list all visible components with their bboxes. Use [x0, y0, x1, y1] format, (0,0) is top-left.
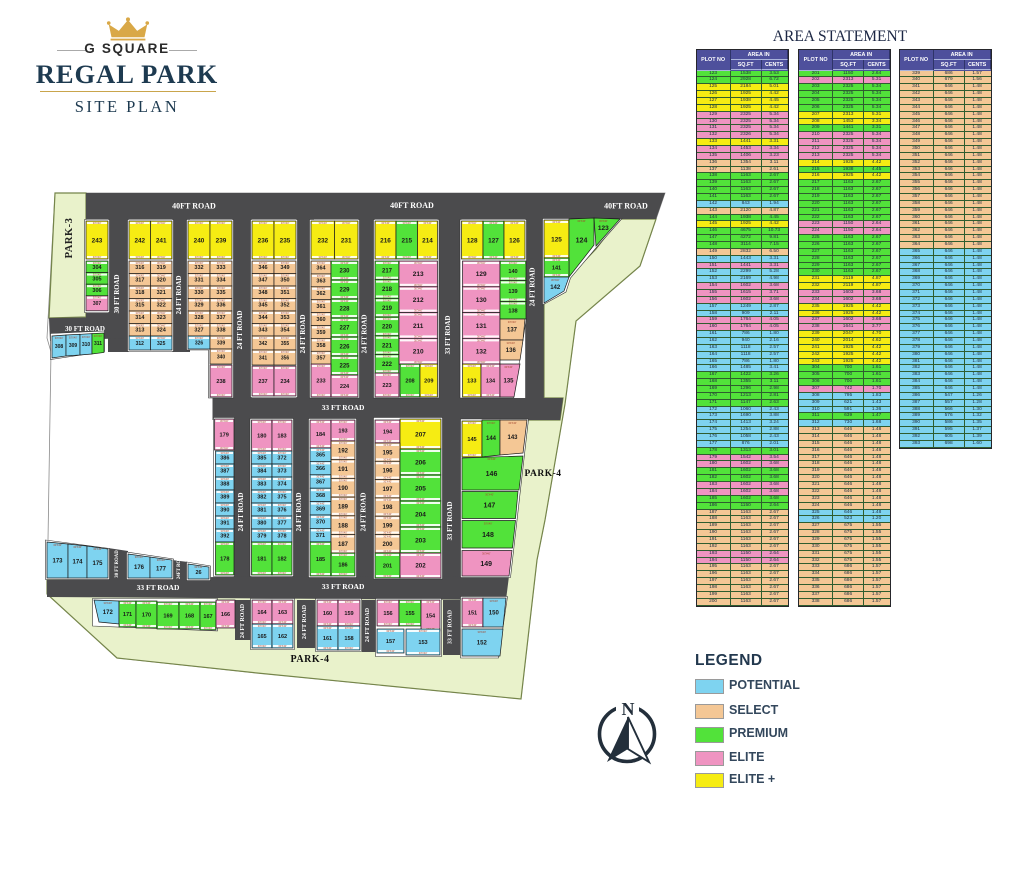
- svg-text:30'X40': 30'X40': [340, 318, 349, 322]
- svg-text:30'X40': 30'X40': [278, 516, 287, 520]
- svg-text:30'X40': 30'X40': [468, 255, 477, 259]
- svg-text:30'X40': 30'X40': [383, 369, 392, 373]
- svg-text:30'X40': 30'X40': [468, 623, 477, 627]
- svg-text:30'X40': 30'X40': [487, 421, 496, 425]
- svg-text:30'X40': 30'X40': [258, 624, 267, 628]
- svg-text:24 FT ROAD: 24 FT ROAD: [296, 493, 303, 532]
- svg-text:30'X40': 30'X40': [383, 457, 392, 461]
- svg-text:234: 234: [280, 379, 290, 385]
- svg-text:30'X40': 30'X40': [278, 464, 287, 468]
- svg-text:30'X40': 30'X40': [383, 313, 392, 317]
- svg-text:233: 233: [316, 379, 325, 385]
- svg-text:30'X40': 30'X40': [340, 375, 349, 379]
- svg-text:30'X40': 30'X40': [383, 549, 392, 553]
- svg-text:30'X40': 30'X40': [94, 334, 103, 338]
- svg-text:140: 140: [508, 269, 517, 275]
- svg-text:30'X40': 30'X40': [259, 366, 268, 370]
- svg-text:150: 150: [489, 611, 500, 617]
- svg-text:30'X40': 30'X40': [383, 531, 392, 535]
- svg-text:30'X40': 30'X40': [204, 626, 213, 630]
- svg-text:PARK-3: PARK-3: [64, 218, 75, 259]
- svg-text:30'X40': 30'X40': [317, 393, 326, 397]
- svg-text:30'X40': 30'X40': [552, 273, 561, 277]
- svg-text:228: 228: [339, 307, 350, 313]
- svg-text:30'X40': 30'X40': [486, 364, 495, 368]
- svg-text:356: 356: [281, 355, 290, 361]
- svg-text:30'X40': 30'X40': [383, 553, 392, 557]
- svg-text:30'X40': 30'X40': [552, 258, 561, 262]
- svg-text:241: 241: [156, 237, 167, 244]
- svg-text:30'X40': 30'X40': [477, 313, 486, 317]
- svg-text:336: 336: [216, 303, 225, 309]
- svg-text:304: 304: [92, 265, 102, 271]
- svg-text:30'X40': 30'X40': [384, 600, 393, 604]
- svg-text:381: 381: [257, 508, 266, 514]
- svg-text:30'X40': 30'X40': [383, 443, 392, 447]
- svg-text:30'X40': 30'X40': [414, 283, 423, 287]
- svg-text:30'X40': 30'X40': [185, 625, 194, 629]
- svg-text:385: 385: [257, 456, 266, 462]
- svg-text:315: 315: [135, 303, 144, 309]
- svg-text:33 FT ROAD: 33 FT ROAD: [322, 582, 365, 591]
- svg-text:30'X40': 30'X40': [345, 646, 354, 650]
- svg-text:30 FT ROAD: 30 FT ROAD: [65, 325, 105, 333]
- svg-text:155: 155: [405, 611, 414, 617]
- svg-text:128: 128: [467, 237, 478, 244]
- svg-text:PARK-4: PARK-4: [524, 469, 561, 479]
- svg-text:242: 242: [134, 237, 145, 244]
- svg-text:30'X40': 30'X40': [414, 338, 423, 342]
- svg-text:380: 380: [257, 521, 266, 527]
- svg-text:332: 332: [194, 265, 203, 271]
- svg-text:30'X40': 30'X40': [383, 498, 392, 502]
- svg-text:30'X40': 30'X40': [468, 421, 477, 425]
- svg-text:344: 344: [258, 315, 268, 321]
- svg-text:30'X40': 30'X40': [316, 542, 325, 546]
- svg-text:30'X40': 30'X40': [340, 337, 349, 341]
- svg-text:30 FT ROAD: 30 FT ROAD: [114, 275, 121, 314]
- svg-text:30'X40': 30'X40': [339, 478, 348, 482]
- svg-text:30'X40': 30'X40': [136, 336, 145, 340]
- svg-text:207: 207: [415, 431, 426, 438]
- svg-text:30'X40': 30'X40': [423, 255, 432, 259]
- svg-text:30'X40': 30'X40': [221, 529, 230, 533]
- svg-text:30'X40': 30'X40': [477, 283, 486, 287]
- svg-text:30'X40': 30'X40': [258, 451, 267, 455]
- svg-text:30'X40': 30'X40': [278, 451, 287, 455]
- svg-text:319: 319: [157, 265, 166, 271]
- svg-text:350: 350: [280, 278, 289, 284]
- svg-text:176: 176: [134, 565, 145, 571]
- svg-text:30'X40': 30'X40': [342, 255, 351, 259]
- svg-text:30'X40': 30'X40': [317, 313, 326, 317]
- svg-text:30'X40': 30'X40': [416, 471, 425, 475]
- svg-text:30'X40': 30'X40': [220, 419, 229, 423]
- svg-text:30 FT ROAD: 30 FT ROAD: [115, 550, 120, 578]
- svg-text:30'X40': 30'X40': [53, 543, 62, 547]
- svg-text:323: 323: [157, 315, 166, 321]
- svg-text:30'X40': 30'X40': [489, 255, 498, 259]
- svg-text:30'X40': 30'X40': [504, 365, 513, 369]
- svg-text:30'X40': 30'X40': [164, 602, 173, 606]
- svg-text:338: 338: [216, 328, 225, 334]
- svg-text:30'X40': 30'X40': [259, 336, 268, 340]
- svg-text:326: 326: [195, 340, 204, 346]
- svg-text:30'X40': 30'X40': [217, 336, 226, 340]
- svg-text:30'X40': 30'X40': [383, 276, 392, 280]
- svg-text:30'X40': 30'X40': [221, 516, 230, 520]
- svg-text:24 FT ROAD: 24 FT ROAD: [530, 268, 537, 307]
- svg-text:40FT ROAD: 40FT ROAD: [172, 202, 216, 211]
- svg-text:30'X40': 30'X40': [484, 522, 493, 526]
- svg-text:30'X40': 30'X40': [510, 255, 519, 259]
- svg-text:305: 305: [92, 276, 101, 282]
- svg-text:369: 369: [316, 506, 325, 512]
- svg-text:30'X40': 30'X40': [195, 221, 204, 225]
- svg-text:237: 237: [258, 379, 267, 385]
- svg-text:371: 371: [316, 533, 325, 539]
- svg-text:30'X40': 30'X40': [316, 488, 325, 492]
- svg-text:203: 203: [415, 537, 426, 544]
- svg-text:30'X40': 30'X40': [416, 497, 425, 501]
- svg-text:174: 174: [72, 560, 83, 566]
- svg-text:30'X40': 30'X40': [477, 334, 486, 338]
- svg-text:341: 341: [259, 355, 268, 361]
- svg-text:30'X40': 30'X40': [281, 221, 290, 225]
- svg-text:370: 370: [316, 520, 325, 526]
- svg-text:169: 169: [163, 614, 172, 620]
- svg-text:30'X40': 30'X40': [317, 300, 326, 304]
- svg-text:30'X40': 30'X40': [340, 352, 349, 356]
- svg-text:30'X40': 30'X40': [316, 572, 325, 576]
- svg-text:382: 382: [257, 495, 266, 501]
- svg-text:30'X40': 30'X40': [104, 601, 113, 605]
- svg-text:30'X40': 30'X40': [258, 464, 267, 468]
- svg-text:33 FT ROAD: 33 FT ROAD: [447, 502, 454, 541]
- svg-text:30'X40': 30'X40': [217, 349, 226, 353]
- svg-text:24 FT ROAD: 24 FT ROAD: [238, 493, 245, 532]
- svg-text:175: 175: [92, 561, 103, 567]
- svg-text:214: 214: [422, 237, 433, 244]
- svg-text:30'X40': 30'X40': [416, 419, 425, 423]
- svg-text:30'X40': 30'X40': [258, 447, 267, 451]
- svg-text:30'X40': 30'X40': [259, 392, 268, 396]
- svg-text:30'X40': 30'X40': [414, 309, 423, 313]
- svg-text:30'X40': 30'X40': [386, 629, 395, 633]
- svg-text:30'X40': 30'X40': [419, 651, 428, 655]
- svg-text:30'X40': 30'X40': [258, 620, 267, 624]
- svg-text:30'X40': 30'X40': [383, 476, 392, 480]
- svg-text:30'X40': 30'X40': [317, 287, 326, 291]
- svg-text:192: 192: [338, 449, 349, 455]
- svg-text:123: 123: [598, 225, 609, 232]
- svg-text:30'X40': 30'X40': [340, 393, 349, 397]
- svg-text:225: 225: [339, 364, 350, 370]
- svg-text:384: 384: [257, 469, 267, 475]
- svg-text:30'X40': 30'X40': [383, 494, 392, 498]
- svg-text:347: 347: [258, 278, 267, 284]
- svg-text:339: 339: [217, 340, 226, 346]
- svg-text:30'X40': 30'X40': [135, 555, 144, 559]
- svg-text:30'X40': 30'X40': [142, 601, 151, 605]
- svg-text:199: 199: [382, 524, 393, 530]
- svg-text:30'X40': 30'X40': [383, 336, 392, 340]
- svg-text:30'X40': 30'X40': [317, 338, 326, 342]
- svg-text:327: 327: [194, 328, 203, 334]
- svg-text:30'X40': 30'X40': [123, 601, 132, 605]
- svg-text:30'X40': 30'X40': [217, 393, 226, 397]
- svg-text:PARK-4: PARK-4: [291, 654, 330, 665]
- svg-text:30'X40': 30'X40': [468, 221, 477, 225]
- svg-text:30'X40': 30'X40': [93, 255, 102, 259]
- svg-text:30'X40': 30'X40': [383, 393, 392, 397]
- svg-text:30'X40': 30'X40': [281, 366, 290, 370]
- svg-text:130: 130: [476, 297, 487, 304]
- svg-text:30'X40': 30'X40': [599, 219, 608, 223]
- svg-text:30'X40': 30'X40': [221, 477, 230, 481]
- svg-text:30'X40': 30'X40': [340, 299, 349, 303]
- svg-text:30'X40': 30'X40': [468, 393, 477, 397]
- svg-text:30'X40': 30'X40': [221, 542, 230, 546]
- svg-text:30'X40': 30'X40': [340, 356, 349, 360]
- svg-text:33 FT ROAD: 33 FT ROAD: [137, 583, 180, 592]
- svg-text:30'X40': 30'X40': [383, 461, 392, 465]
- svg-text:30'X40': 30'X40': [258, 529, 267, 533]
- svg-text:30'X40': 30'X40': [339, 497, 348, 501]
- svg-text:30'X40': 30'X40': [509, 298, 518, 302]
- svg-text:30'X40': 30'X40': [217, 221, 226, 225]
- svg-text:124: 124: [576, 237, 588, 244]
- svg-text:158: 158: [344, 636, 353, 642]
- svg-text:30'X40': 30'X40': [383, 480, 392, 484]
- svg-text:230: 230: [339, 269, 350, 275]
- svg-text:163: 163: [278, 610, 287, 616]
- svg-text:30'X40': 30'X40': [258, 516, 267, 520]
- svg-text:30'X40': 30'X40': [142, 624, 151, 628]
- svg-text:30'X40': 30'X40': [164, 625, 173, 629]
- svg-text:167: 167: [203, 614, 212, 620]
- svg-text:340: 340: [217, 354, 226, 360]
- svg-text:186: 186: [338, 563, 347, 569]
- svg-text:33 FT ROAD: 33 FT ROAD: [448, 609, 454, 644]
- svg-text:30'X40': 30'X40': [510, 221, 519, 225]
- svg-text:30'X40': 30'X40': [551, 278, 560, 282]
- svg-text:329: 329: [194, 303, 203, 309]
- svg-text:30'X40': 30'X40': [383, 317, 392, 321]
- svg-text:170: 170: [142, 613, 151, 619]
- svg-text:352: 352: [280, 303, 289, 309]
- svg-text:134: 134: [486, 379, 496, 385]
- svg-text:156: 156: [383, 611, 392, 617]
- svg-text:235: 235: [280, 237, 291, 244]
- svg-text:30'X40': 30'X40': [69, 336, 78, 340]
- svg-text:30'X40': 30'X40': [508, 320, 517, 324]
- svg-text:133: 133: [467, 379, 476, 385]
- svg-text:190: 190: [338, 486, 349, 492]
- svg-text:211: 211: [413, 323, 424, 330]
- svg-text:30'X40': 30'X40': [425, 393, 434, 397]
- svg-text:30'X40': 30'X40': [157, 255, 166, 259]
- svg-text:30'X40': 30'X40': [416, 553, 425, 557]
- svg-text:139: 139: [508, 289, 517, 295]
- svg-text:195: 195: [382, 450, 393, 456]
- svg-text:30'X40': 30'X40': [509, 301, 518, 305]
- svg-text:179: 179: [220, 433, 229, 439]
- svg-text:210: 210: [413, 349, 424, 356]
- svg-text:30'X40': 30'X40': [477, 338, 486, 342]
- svg-text:30'X40': 30'X40': [339, 553, 348, 557]
- svg-text:215: 215: [401, 237, 412, 244]
- svg-text:30'X40': 30'X40': [157, 221, 166, 225]
- svg-text:30'X40': 30'X40': [73, 545, 82, 549]
- svg-text:30'X40': 30'X40': [316, 420, 325, 424]
- svg-text:30'X40': 30'X40': [278, 542, 287, 546]
- svg-text:349: 349: [280, 265, 289, 271]
- svg-text:30'X40': 30'X40': [509, 261, 518, 265]
- svg-text:30'X40': 30'X40': [258, 571, 267, 575]
- svg-text:367: 367: [316, 480, 325, 486]
- svg-text:236: 236: [258, 237, 269, 244]
- svg-text:333: 333: [216, 265, 225, 271]
- svg-text:30'X40': 30'X40': [258, 477, 267, 481]
- svg-text:30'X40': 30'X40': [406, 622, 415, 626]
- svg-text:187: 187: [338, 542, 349, 548]
- svg-text:30'X40': 30'X40': [381, 255, 390, 259]
- svg-text:30'X40': 30'X40': [82, 335, 91, 339]
- svg-text:30'X40': 30'X40': [316, 461, 325, 465]
- svg-text:30'X40': 30'X40': [383, 298, 392, 302]
- svg-text:30'X40': 30'X40': [316, 448, 325, 452]
- svg-text:181: 181: [257, 557, 266, 563]
- svg-text:392: 392: [220, 534, 229, 540]
- svg-text:30'X40': 30'X40': [259, 255, 268, 259]
- svg-text:24 FT ROAD: 24 FT ROAD: [365, 607, 371, 642]
- svg-text:30'X40': 30'X40': [339, 420, 348, 424]
- svg-text:351: 351: [280, 290, 289, 296]
- svg-text:30'X40': 30'X40': [278, 503, 287, 507]
- svg-text:30'X40': 30'X40': [345, 600, 354, 604]
- svg-text:148: 148: [482, 532, 494, 539]
- svg-text:30'X40': 30'X40': [383, 351, 392, 355]
- svg-text:30'X40': 30'X40': [278, 600, 287, 604]
- svg-text:30'X40': 30'X40': [406, 393, 415, 397]
- svg-text:30'X40': 30'X40': [340, 371, 349, 375]
- svg-text:212: 212: [413, 297, 424, 304]
- svg-text:173: 173: [52, 559, 63, 565]
- svg-text:346: 346: [258, 265, 267, 271]
- svg-text:30'X40': 30'X40': [416, 501, 425, 505]
- svg-text:30'X40': 30'X40': [194, 565, 203, 569]
- svg-text:383: 383: [257, 482, 266, 488]
- svg-text:307: 307: [93, 301, 102, 307]
- svg-text:160: 160: [323, 611, 332, 617]
- svg-text:30'X40': 30'X40': [319, 221, 328, 225]
- svg-text:379: 379: [257, 534, 266, 540]
- svg-text:196: 196: [382, 469, 393, 475]
- svg-text:30'X40': 30'X40': [221, 464, 230, 468]
- svg-text:309: 309: [69, 343, 78, 349]
- svg-text:30'X40': 30'X40': [383, 332, 392, 336]
- svg-text:30'X40': 30'X40': [414, 313, 423, 317]
- svg-text:127: 127: [488, 237, 499, 244]
- svg-text:30'X40': 30'X40': [185, 602, 194, 606]
- svg-text:30'X40': 30'X40': [339, 441, 348, 445]
- svg-text:30'X40': 30'X40': [340, 333, 349, 337]
- svg-text:30'X40': 30'X40': [93, 547, 102, 551]
- svg-text:229: 229: [339, 288, 350, 294]
- svg-text:184: 184: [316, 432, 326, 438]
- svg-text:30'X40': 30'X40': [339, 572, 348, 576]
- svg-text:30'X40': 30'X40': [339, 512, 348, 516]
- svg-text:151: 151: [468, 611, 477, 617]
- svg-text:30'X40': 30'X40': [339, 531, 348, 535]
- svg-text:30'X40': 30'X40': [416, 445, 425, 449]
- svg-text:30'X40': 30'X40': [281, 350, 290, 354]
- svg-text:24 FT ROAD: 24 FT ROAD: [176, 276, 183, 315]
- svg-text:145: 145: [467, 437, 476, 443]
- svg-text:30'X40': 30'X40': [258, 490, 267, 494]
- svg-text:321: 321: [157, 290, 166, 296]
- svg-text:231: 231: [341, 237, 352, 244]
- svg-text:30'X40': 30'X40': [323, 600, 332, 604]
- svg-text:30'X40': 30'X40': [340, 280, 349, 284]
- svg-text:355: 355: [281, 341, 290, 347]
- svg-text:126: 126: [509, 237, 520, 244]
- svg-text:141: 141: [552, 266, 561, 272]
- svg-text:30'X40': 30'X40': [281, 392, 290, 396]
- svg-text:208: 208: [405, 379, 414, 385]
- svg-text:138: 138: [508, 308, 517, 314]
- svg-text:30'X40': 30'X40': [486, 393, 495, 397]
- svg-text:171: 171: [123, 612, 132, 618]
- svg-text:144: 144: [486, 436, 497, 442]
- svg-text:209: 209: [424, 379, 433, 385]
- svg-text:30'X40': 30'X40': [281, 336, 290, 340]
- svg-text:200: 200: [382, 542, 393, 548]
- svg-text:30'X40': 30'X40': [221, 490, 230, 494]
- svg-text:337: 337: [216, 315, 225, 321]
- svg-text:161: 161: [323, 636, 332, 642]
- svg-text:194: 194: [383, 430, 393, 436]
- svg-text:217: 217: [382, 269, 393, 275]
- svg-text:40FT ROAD: 40FT ROAD: [390, 201, 434, 210]
- svg-text:30'X40': 30'X40': [317, 364, 326, 368]
- svg-text:30'X40': 30'X40': [278, 571, 287, 575]
- svg-text:125: 125: [551, 236, 562, 243]
- svg-text:310: 310: [82, 342, 91, 348]
- svg-text:137: 137: [507, 328, 518, 334]
- svg-text:30'X40': 30'X40': [383, 280, 392, 284]
- svg-text:30'X40': 30'X40': [416, 574, 425, 578]
- svg-text:325: 325: [157, 341, 166, 347]
- svg-text:360: 360: [316, 317, 325, 323]
- svg-text:30'X40': 30'X40': [93, 221, 102, 225]
- svg-text:306: 306: [92, 288, 101, 294]
- svg-text:239: 239: [216, 237, 227, 244]
- svg-text:30'X40': 30'X40': [414, 360, 423, 364]
- svg-text:30'X40': 30'X40': [157, 558, 166, 562]
- svg-text:147: 147: [484, 503, 496, 510]
- svg-text:218: 218: [382, 287, 393, 293]
- svg-text:216: 216: [380, 237, 391, 244]
- svg-text:30'X40': 30'X40': [258, 600, 267, 604]
- svg-text:185: 185: [316, 557, 325, 563]
- svg-text:30'X40': 30'X40': [339, 493, 348, 497]
- svg-text:24 FT ROAD: 24 FT ROAD: [362, 315, 369, 354]
- svg-text:149: 149: [480, 561, 492, 568]
- svg-text:136: 136: [506, 348, 517, 354]
- svg-text:30'X40': 30'X40': [416, 527, 425, 531]
